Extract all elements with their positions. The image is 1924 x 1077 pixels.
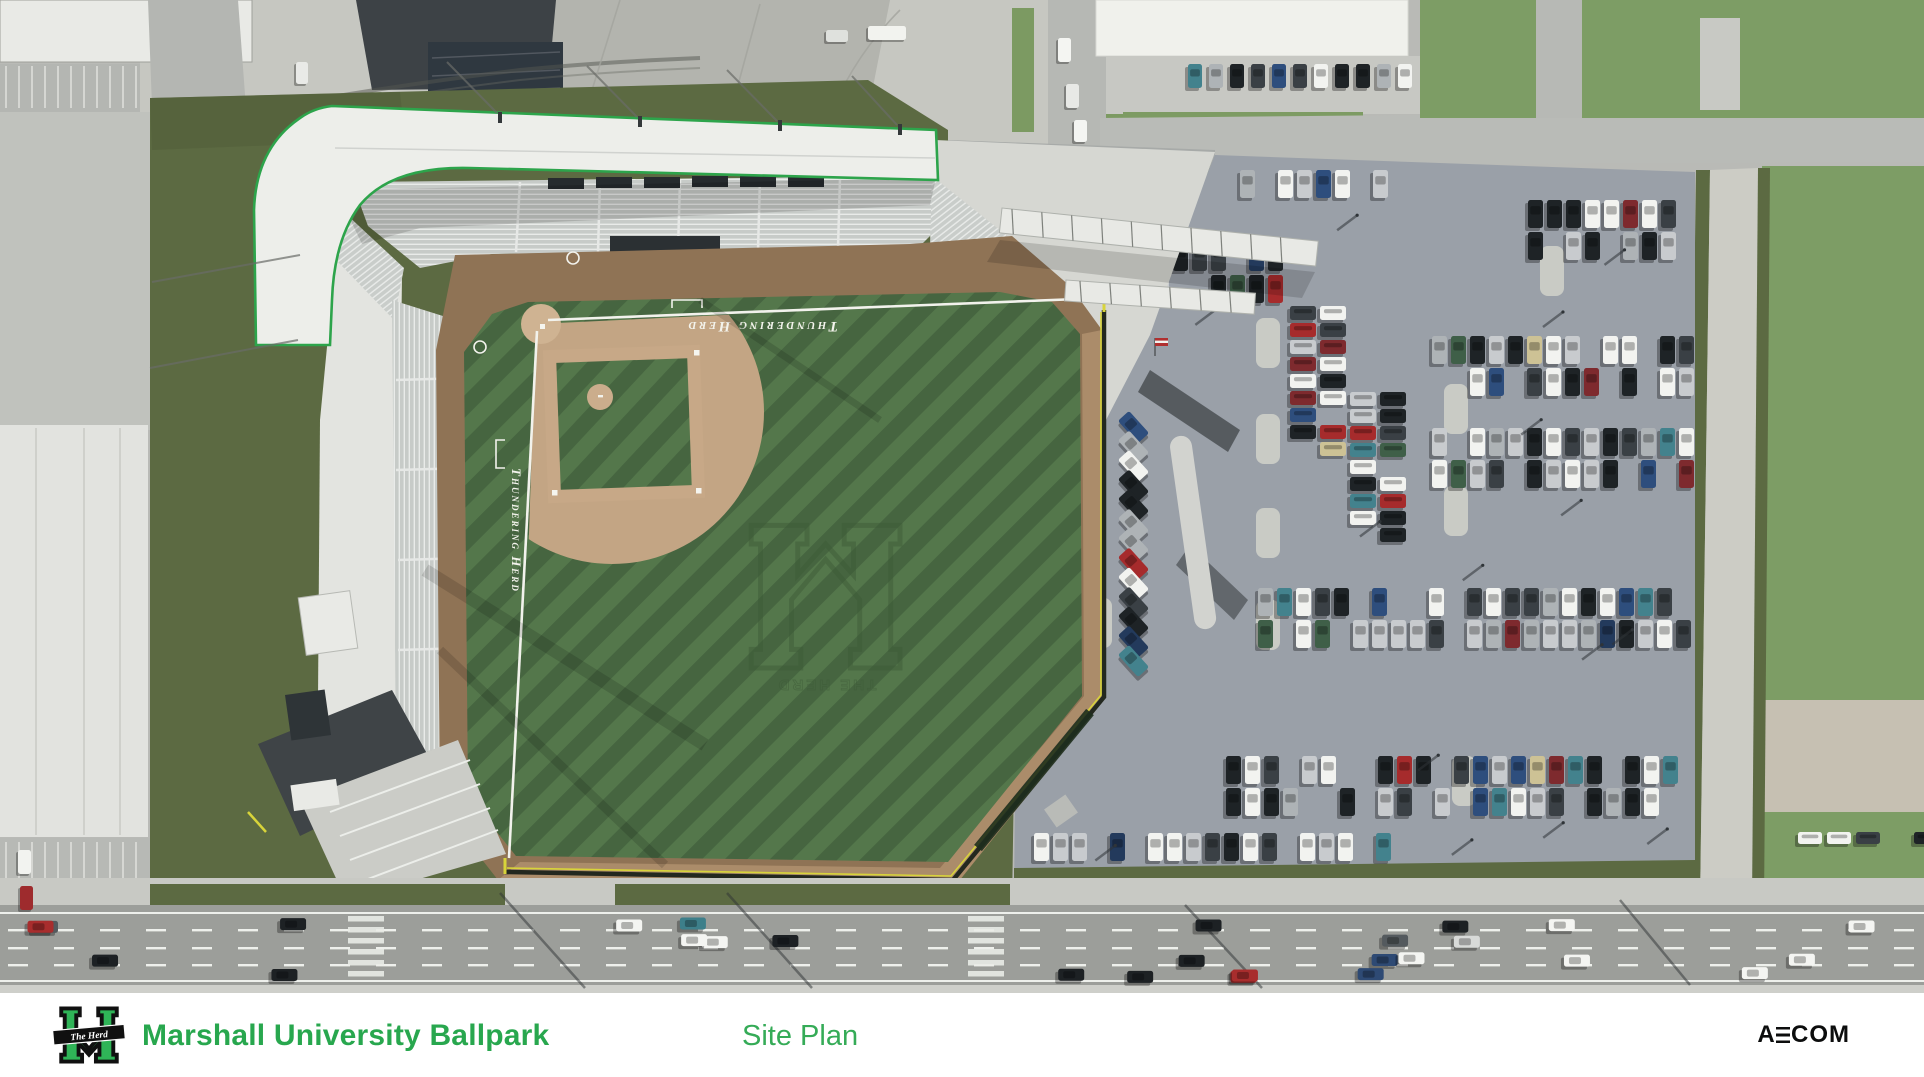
parked-car [1377,477,1406,494]
crosswalk-bar [348,927,384,933]
parked-car [1543,336,1561,367]
aecom-letter-a: A [1757,1021,1775,1049]
vehicle [16,850,31,876]
concession-building [298,591,358,656]
lane-dash [1572,947,1592,949]
lane-dash [1020,929,1040,931]
parked-car [1543,460,1561,491]
sidewalk-south [0,985,1924,993]
vehicle [824,30,848,44]
lane-dash [422,964,442,966]
lane-dash [1158,947,1178,949]
traffic-car [89,955,118,970]
parked-car [1317,340,1346,357]
parked-car [1540,588,1558,619]
parked-car [1223,788,1241,819]
lane-dash [1250,929,1270,931]
parked-car [1221,833,1239,864]
lane-dash [54,964,74,966]
lane-dash [1204,964,1224,966]
lane-dash [146,947,166,949]
lane-dash [1020,947,1040,949]
lot-pad [1256,508,1280,558]
traffic-car [1561,955,1590,970]
parked-car [1676,368,1694,399]
parked-car [1467,336,1485,367]
lane-dash [1710,947,1730,949]
lane-dash [1756,964,1776,966]
parked-car [1290,64,1307,91]
page-subtitle: Site Plan [742,1020,858,1053]
parked-car [1565,756,1583,787]
parked-car [1524,336,1542,367]
parked-car [1654,620,1672,651]
lane-dash [1480,964,1500,966]
traffic-car [1124,971,1153,986]
parked-car [1467,428,1485,459]
lot-pad [1256,414,1280,464]
parked-car [1603,788,1621,819]
crosswalk-bar [968,971,1004,977]
parked-car [1635,588,1653,619]
marshall-logo: The Herd [52,1000,126,1070]
parked-car [1248,64,1265,91]
parked-car [1853,832,1880,847]
aerial-site-plan: THE HERD Thundering Herd Thundering Herd [0,0,1924,993]
parked-car [1562,460,1580,491]
parked-car [1259,833,1277,864]
parked-car [1508,756,1526,787]
lane-dash [652,947,672,949]
parked-car [1350,620,1368,651]
parked-car [1489,788,1507,819]
concrete-patch [540,0,890,92]
parked-car [1521,588,1539,619]
west-lot [0,112,150,430]
parked-car [1377,494,1406,511]
lane-dash [192,964,212,966]
parked-car [1069,833,1087,864]
crosswalk-bar [348,938,384,944]
lane-dash [1066,929,1086,931]
parked-car [1347,494,1376,511]
parked-car [1600,336,1618,367]
aecom-letter-e: E [1776,1027,1790,1044]
gravel-lot [1758,700,1924,812]
lane-dash [744,964,764,966]
parked-car [1486,428,1504,459]
parked-car [1489,756,1507,787]
parked-car [1255,620,1273,651]
parked-car [1527,788,1545,819]
traffic-car [678,934,707,949]
parked-car [1394,788,1412,819]
lane-dash [1710,964,1730,966]
lane-dash [1894,964,1914,966]
lane-dash [1204,947,1224,949]
parked-car [1335,833,1353,864]
parked-car [1563,232,1581,263]
driveway [1700,18,1740,110]
lane-dash [1894,929,1914,931]
parked-car [1824,832,1851,847]
traffic-car [1451,936,1480,951]
parked-car [1543,428,1561,459]
parked-car [1582,232,1600,263]
traffic-car [1055,969,1084,984]
lane-dash [1572,929,1592,931]
parked-car [1543,368,1561,399]
parked-car [1261,756,1279,787]
parked-car [1377,426,1406,443]
parked-car [1287,323,1316,340]
title-bar: The Herd Marshall University Ballpark Si… [0,993,1924,1077]
lane-dash [1618,964,1638,966]
traffic-car [25,921,54,936]
lot-pad [1256,318,1280,368]
lane-dash [1158,929,1178,931]
parked-car [1562,368,1580,399]
lane-dash [468,947,488,949]
lane-dash [928,947,948,949]
lane-dash [1112,947,1132,949]
parked-car [1287,306,1316,323]
parked-car [1394,756,1412,787]
parked-car [1377,528,1406,545]
lane-dash [882,947,902,949]
crosswalk-bar [348,949,384,955]
lane-dash [1848,947,1868,949]
lane-dash [1526,929,1546,931]
parked-car [1317,323,1346,340]
parked-car [1654,588,1672,619]
lot-pad [1444,486,1468,536]
traffic-car [1846,921,1875,936]
lane-dash [836,929,856,931]
lane-dash [146,964,166,966]
lane-dash [698,964,718,966]
parked-car [1426,620,1444,651]
parked-car [1316,833,1334,864]
lane-dash [422,947,442,949]
parked-car [1600,428,1618,459]
lot-pad [1444,384,1468,434]
parked-car [1584,788,1602,819]
parked-car [1467,460,1485,491]
lane-dash [1710,929,1730,931]
traffic-car [1379,935,1408,950]
parked-car [1451,756,1469,787]
lane-dash [1020,964,1040,966]
lane-dash [1066,964,1086,966]
lane-dash [100,947,120,949]
lane-dash [744,947,764,949]
parked-car [1395,64,1412,91]
pitching-rubber [598,395,603,397]
traffic-car [1229,969,1258,984]
aecom-logo: AECOM [1757,1021,1850,1049]
parked-car [1544,200,1562,231]
lane-dash [468,964,488,966]
third-base-field-text: Thundering Herd [509,468,524,593]
parked-car [1616,588,1634,619]
parked-car [1660,756,1678,787]
parked-car [1432,788,1450,819]
parked-car [1317,306,1346,323]
traffic-car [1439,921,1468,936]
lane-dash [514,947,534,949]
lane-dash [560,929,580,931]
lane-dash [1342,964,1362,966]
lane-dash [330,929,350,931]
parked-car [1337,788,1355,819]
lane-dash [330,964,350,966]
parked-car [1641,756,1659,787]
parked-car [1377,409,1406,426]
lane-dash [1250,947,1270,949]
parked-car [1413,756,1431,787]
lane-dash [192,929,212,931]
lane-dash [330,947,350,949]
parked-car [1377,511,1406,528]
lane-dash [836,947,856,949]
parked-car [1619,336,1637,367]
traffic-car [268,969,297,984]
parked-car [1293,620,1311,651]
vehicle [1064,84,1079,110]
aecom-letters-com: COM [1791,1021,1850,1049]
parked-car [1620,232,1638,263]
parked-car [1317,374,1346,391]
parked-car [1269,64,1286,91]
parked-car [1280,788,1298,819]
lane-dash [8,964,28,966]
parked-car [1578,588,1596,619]
lane-dash [1756,929,1776,931]
parked-car [1353,64,1370,91]
warehouse-roof-w [0,425,148,837]
parked-car [1407,620,1425,651]
parked-car [1299,756,1317,787]
parked-car [1524,368,1542,399]
parked-car [1673,620,1691,651]
parked-car [1369,620,1387,651]
parked-car [1332,64,1349,91]
parked-car [1657,428,1675,459]
lane-dash [928,964,948,966]
crosswalk-bar [968,949,1004,955]
site-plan-slide: THE HERD Thundering Herd Thundering Herd [0,0,1924,1077]
parked-car [1377,443,1406,460]
vehicle [866,26,906,42]
infield-grass [550,352,699,497]
parked-car [1483,620,1501,651]
lane-dash [1894,947,1914,949]
parked-car [1546,756,1564,787]
parked-car [1374,64,1391,91]
parked-car [1347,460,1376,477]
parked-car [1559,620,1577,651]
parked-car [1294,170,1312,201]
parked-car [1525,200,1543,231]
parked-car [1429,336,1447,367]
parked-car [1638,428,1656,459]
backstop-field-text: Thundering Herd [686,318,838,334]
parked-car [1581,460,1599,491]
parked-car [1375,756,1393,787]
traffic-car [1193,919,1222,934]
crosswalk-bar [968,927,1004,933]
lane-dash [1066,947,1086,949]
lane-dash [284,947,304,949]
parked-car [1582,200,1600,231]
lane-dash [468,929,488,931]
parked-car [1227,64,1244,91]
parked-car [1578,620,1596,651]
parked-car [1287,340,1316,357]
parked-car [1318,756,1336,787]
parked-car [1464,588,1482,619]
crosswalk-bar [348,960,384,966]
lane-dash [284,964,304,966]
parked-car [1600,460,1618,491]
lane-dash [1112,964,1132,966]
parked-car [1426,588,1444,619]
traffic-car [1355,968,1384,983]
parked-car [1622,788,1640,819]
parked-car [1429,460,1447,491]
solar-canopy [285,689,331,740]
parked-car [1676,336,1694,367]
parked-car [1373,833,1391,864]
vehicle [18,886,33,912]
parked-car [1275,170,1293,201]
traffic-car [1395,952,1424,967]
parked-car [1467,368,1485,399]
lane-dash [652,964,672,966]
lane-dash [1526,964,1546,966]
lane-dash [1802,929,1822,931]
parked-car [1031,833,1049,864]
lane-dash [1388,929,1408,931]
parked-car [1508,788,1526,819]
lane-dash [928,929,948,931]
lane-dash [1664,947,1684,949]
parked-car [1639,200,1657,231]
lot-pad [1540,246,1564,296]
parked-car [1620,200,1638,231]
lane-dash [1112,929,1132,931]
parked-car [1347,392,1376,409]
parked-car [1584,756,1602,787]
parked-car [1297,833,1315,864]
traffic-car [277,918,306,933]
lane-dash [1250,964,1270,966]
parked-car [1581,368,1599,399]
parked-car [1287,357,1316,374]
parked-car [1470,756,1488,787]
parked-car [1562,428,1580,459]
parked-car [1505,428,1523,459]
lane-dash [1480,929,1500,931]
parked-car [1448,336,1466,367]
parked-car [1317,442,1346,459]
parked-car [1619,428,1637,459]
lane-dash [1342,929,1362,931]
crosswalk-bar [968,916,1004,922]
crosswalk-bar [968,960,1004,966]
lane-dash [146,929,166,931]
lane-dash [1664,929,1684,931]
parked-car [1261,788,1279,819]
parked-car [1795,832,1822,847]
traffic-car [1739,967,1768,982]
parked-car [1347,409,1376,426]
parked-car [1639,232,1657,263]
lane-dash [1296,964,1316,966]
traffic-car [1369,954,1398,969]
parked-car [1524,428,1542,459]
parked-car [1347,477,1376,494]
lane-dash [8,947,28,949]
parked-car [1658,200,1676,231]
lane-dash [1434,964,1454,966]
parked-car [1464,620,1482,651]
parked-car [1658,232,1676,263]
north-south-street [1700,168,1758,905]
crosswalk-bar [348,971,384,977]
parked-car [1581,428,1599,459]
parked-car [1470,788,1488,819]
parked-car [1597,588,1615,619]
lane-dash [1526,947,1546,949]
warehouse-roof-ne [1096,0,1408,56]
vehicle [1072,120,1087,144]
parked-car [1347,443,1376,460]
parked-car [1183,833,1201,864]
parked-car [1312,620,1330,651]
parked-car [1370,170,1388,201]
parked-car [1313,170,1331,201]
parked-car [1657,368,1675,399]
parked-car [1524,460,1542,491]
parked-car [1332,170,1350,201]
parked-car [1486,368,1504,399]
parked-car [1312,588,1330,619]
parked-car [1237,170,1255,201]
parked-car [1369,588,1387,619]
traffic-car [1176,955,1205,970]
lane-dash [100,929,120,931]
parked-car [1375,788,1393,819]
residential-street [1536,0,1582,118]
lane-dash [514,964,534,966]
parked-car [1641,788,1659,819]
parked-car [1164,833,1182,864]
lane-dash [1296,947,1316,949]
parked-car [1525,232,1543,263]
parked-car [1050,833,1068,864]
parked-car [1638,460,1656,491]
parked-car [1429,428,1447,459]
parked-car [1317,391,1346,408]
lane-dash [238,929,258,931]
crosswalk-bar [968,938,1004,944]
parked-car [1293,588,1311,619]
lane-dash [606,964,626,966]
outfield-logo-text: THE HERD [776,676,877,693]
parked-car [1486,336,1504,367]
